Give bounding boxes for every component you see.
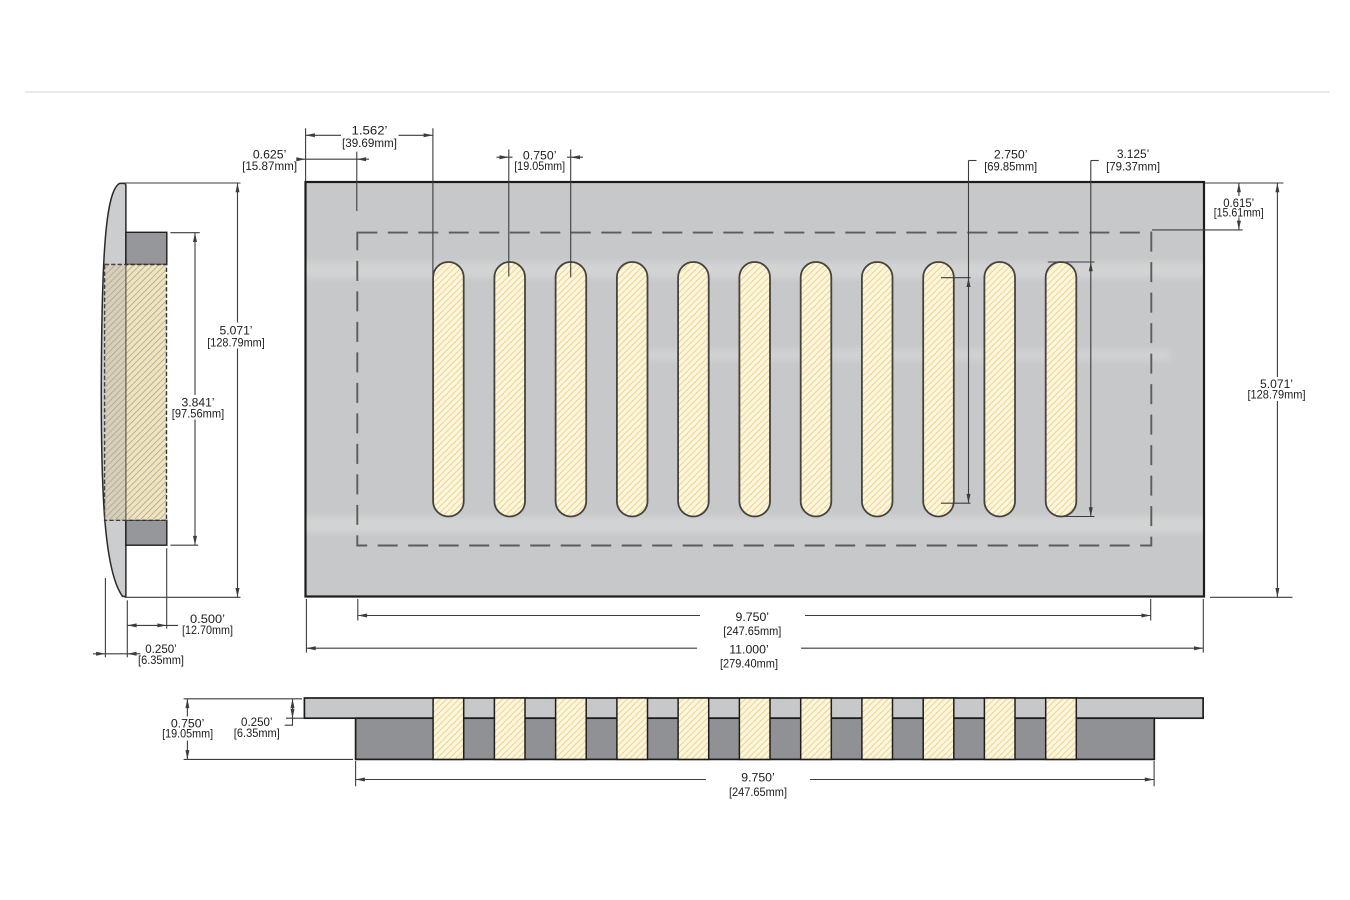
svg-text:11.000’: 11.000’: [729, 643, 769, 657]
svg-text:[6.35mm]: [6.35mm]: [234, 726, 280, 740]
svg-text:[39.69mm]: [39.69mm]: [342, 136, 397, 150]
svg-text:[15.87mm]: [15.87mm]: [242, 159, 297, 173]
svg-text:[19.05mm]: [19.05mm]: [514, 159, 565, 173]
svg-text:[128.79mm]: [128.79mm]: [207, 335, 265, 349]
svg-text:[279.40mm]: [279.40mm]: [720, 656, 778, 670]
svg-text:[128.79mm]: [128.79mm]: [1248, 388, 1306, 402]
svg-text:[97.56mm]: [97.56mm]: [172, 406, 225, 420]
svg-text:[247.65mm]: [247.65mm]: [729, 785, 787, 799]
svg-text:[12.70mm]: [12.70mm]: [182, 623, 233, 637]
svg-text:[19.05mm]: [19.05mm]: [162, 727, 213, 741]
svg-text:9.750’: 9.750’: [736, 610, 770, 624]
svg-text:9.750’: 9.750’: [741, 770, 775, 784]
svg-text:[69.85mm]: [69.85mm]: [984, 160, 1037, 174]
svg-text:[247.65mm]: [247.65mm]: [723, 624, 781, 638]
svg-text:[79.37mm]: [79.37mm]: [1106, 160, 1160, 174]
svg-text:[6.35mm]: [6.35mm]: [138, 653, 184, 667]
svg-text:[15.61mm]: [15.61mm]: [1214, 206, 1264, 220]
